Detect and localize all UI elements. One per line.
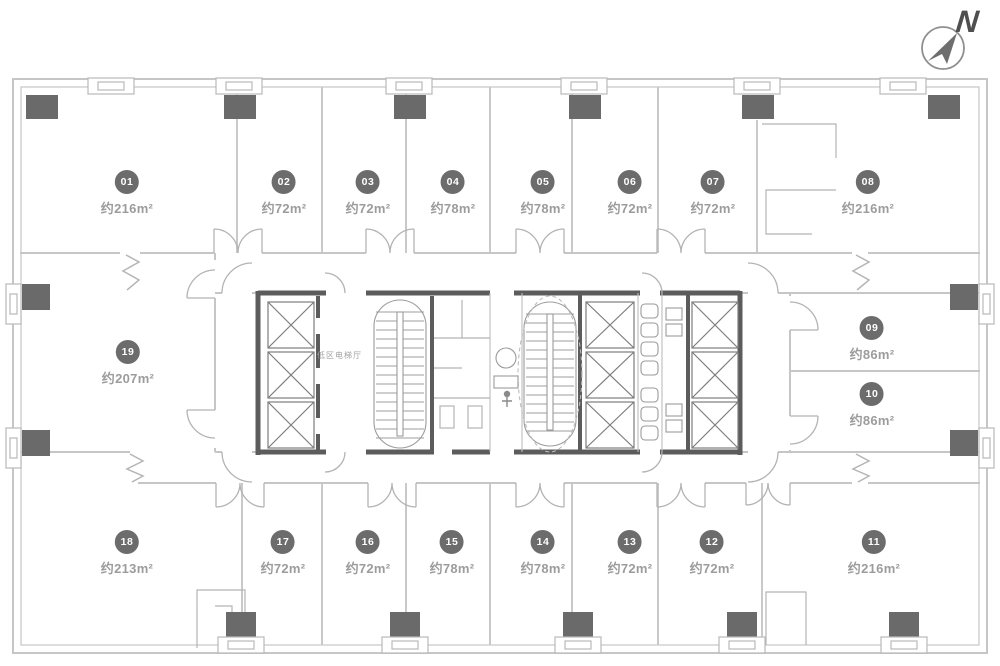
unit-label-11: 11 约216m² [848,530,900,577]
door-arcs [187,229,818,507]
unit-number-badge: 10 [860,382,884,406]
north-label: N [954,4,980,40]
unit-label-01: 01 约216m² [101,170,153,217]
unit-number-badge: 18 [115,530,139,554]
unit-number-badge: 12 [700,530,724,554]
unit-area: 约72m² [608,198,653,217]
unit-number-badge: 13 [618,530,642,554]
unit-area: 约72m² [346,198,391,217]
staircase [374,300,426,448]
unit-label-08: 08 约216m² [842,170,894,217]
unit-number-badge: 16 [356,530,380,554]
unit-label-04: 04 约78m² [431,170,476,217]
unit-label-16: 16 约72m² [346,530,391,577]
unit-number-badge: 07 [701,170,725,194]
unit-number-badge: 01 [115,170,139,194]
unit-area: 约207m² [102,368,154,387]
unit-label-17: 17 约72m² [261,530,306,577]
elevator-bank [692,302,738,448]
accessible-wc-icon [502,391,512,407]
elevator-hall-label: 低区电梯厅 [317,350,362,361]
unit-number-badge: 04 [441,170,465,194]
unit-area: 约86m² [850,410,895,429]
unit-label-19: 19 约207m² [102,340,154,387]
unit-label-02: 02 约72m² [262,170,307,217]
unit-area: 约78m² [430,558,475,577]
unit-number-badge: 08 [856,170,880,194]
unit-label-18: 18 约213m² [101,530,153,577]
staircase [518,296,582,452]
unit-label-05: 05 约78m² [521,170,566,217]
unit-area: 约78m² [431,198,476,217]
unit-number-badge: 05 [531,170,555,194]
unit-number-badge: 17 [271,530,295,554]
unit-area: 约86m² [850,344,895,363]
unit-number-badge: 14 [531,530,555,554]
unit-area: 约72m² [691,198,736,217]
unit-area: 约72m² [346,558,391,577]
unit-label-03: 03 约72m² [346,170,391,217]
unit-label-12: 12 约72m² [690,530,735,577]
unit-label-06: 06 约72m² [608,170,653,217]
unit-area: 约216m² [101,198,153,217]
unit-area: 约72m² [262,198,307,217]
unit-area: 约216m² [848,558,900,577]
unit-number-badge: 06 [618,170,642,194]
unit-label-09: 09 约86m² [850,316,895,363]
unit-number-badge: 02 [272,170,296,194]
unit-label-07: 07 约72m² [691,170,736,217]
unit-area: 约72m² [690,558,735,577]
unit-label-13: 13 约72m² [608,530,653,577]
unit-area: 约213m² [101,558,153,577]
expansion-joints [123,255,869,482]
unit-number-badge: 11 [862,530,886,554]
unit-area: 约72m² [261,558,306,577]
unit-label-15: 15 约78m² [430,530,475,577]
unit-area: 约78m² [521,558,566,577]
unit-area: 约78m² [521,198,566,217]
elevator-bank [268,302,314,448]
corridor-walls [20,253,980,483]
unit-number-badge: 09 [860,316,884,340]
unit-label-14: 14 约78m² [521,530,566,577]
floor-plan: N 低区电梯厅 01 约216m² 02 约72m² 03 约72m² 04 约… [0,0,1000,666]
unit-number-badge: 15 [440,530,464,554]
unit-number-badge: 03 [356,170,380,194]
elevator-bank [586,302,634,448]
unit-label-10: 10 约86m² [850,382,895,429]
core-walls [258,291,740,455]
unit-number-badge: 19 [116,340,140,364]
unit-area: 约216m² [842,198,894,217]
unit-area: 约72m² [608,558,653,577]
